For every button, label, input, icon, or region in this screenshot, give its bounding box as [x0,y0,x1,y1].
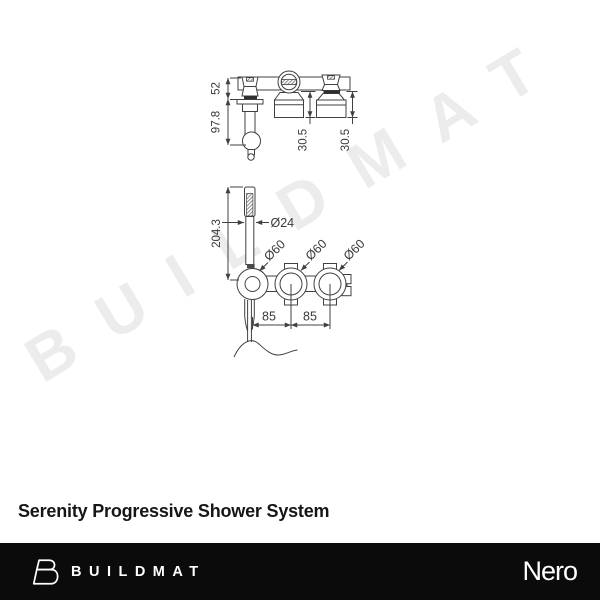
buildmat-logo: BUILDMAT [31,558,206,586]
nero-logo: Nero [522,556,577,587]
dim-label-30-5-right: 30.5 [340,129,352,151]
front-view-handshower-bracket [237,269,268,300]
dim-label-52: 52 [211,82,223,95]
dim-label-85-2: 85 [303,310,317,324]
top-view: 52 97.8 30.5 3 [211,71,358,160]
dim-52: 52 [211,78,242,99]
dim-85-1: 85 [253,310,292,330]
buildmat-logo-icon [31,558,60,586]
dim-d60-1: Ø60 [260,237,289,271]
dim-85-2: 85 [291,310,330,326]
dim-d60-3: Ø60 [339,237,368,271]
break-line [234,341,298,357]
dim-label-d24: Ø24 [271,216,295,230]
front-view-diverter-knob [314,268,346,329]
top-view-mixer-knob [275,71,304,118]
dim-label-d60-3: Ø60 [341,237,368,264]
buildmat-wordmark: BUILDMAT [71,564,206,580]
front-view: 204.3 Ø24 Ø60 Ø60 Ø60 [211,187,368,357]
dim-97-8: 97.8 [211,99,247,145]
product-spec-page: BUILDMAT [0,0,600,600]
dim-label-30-5-mid: 30.5 [298,129,310,151]
dim-d24: Ø24 [222,216,294,230]
dim-label-d60-2: Ø60 [303,237,330,264]
front-view-handshower [245,187,256,268]
footer-bar: BUILDMAT Nero [0,543,600,600]
dim-label-d60-1: Ø60 [261,237,288,264]
front-view-hose [234,299,298,357]
dim-label-85-1: 85 [262,310,276,324]
dim-label-204-3: 204.3 [211,219,223,248]
dim-label-97-8: 97.8 [211,111,223,133]
dim-204-3: 204.3 [211,187,243,280]
product-title: Serenity Progressive Shower System [18,501,329,522]
